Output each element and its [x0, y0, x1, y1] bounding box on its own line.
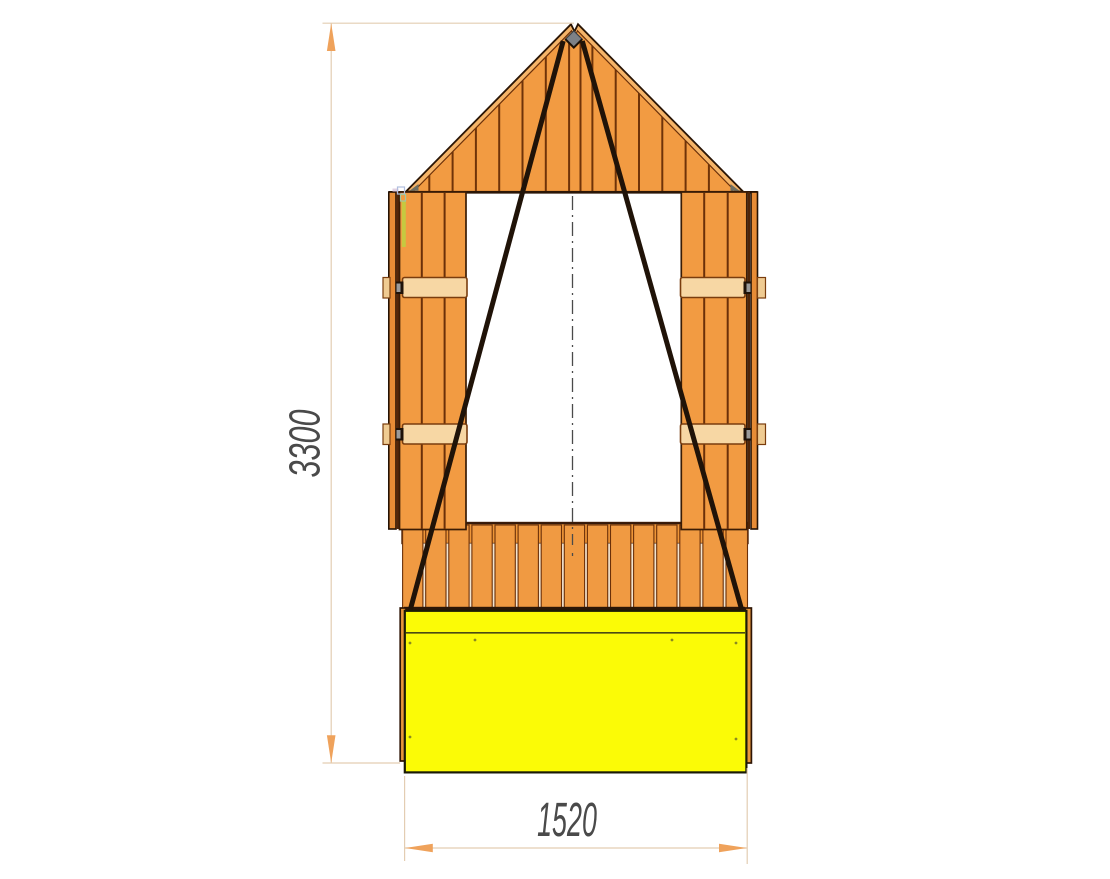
svg-text:3300: 3300	[281, 409, 330, 477]
svg-text:1520: 1520	[537, 794, 597, 847]
